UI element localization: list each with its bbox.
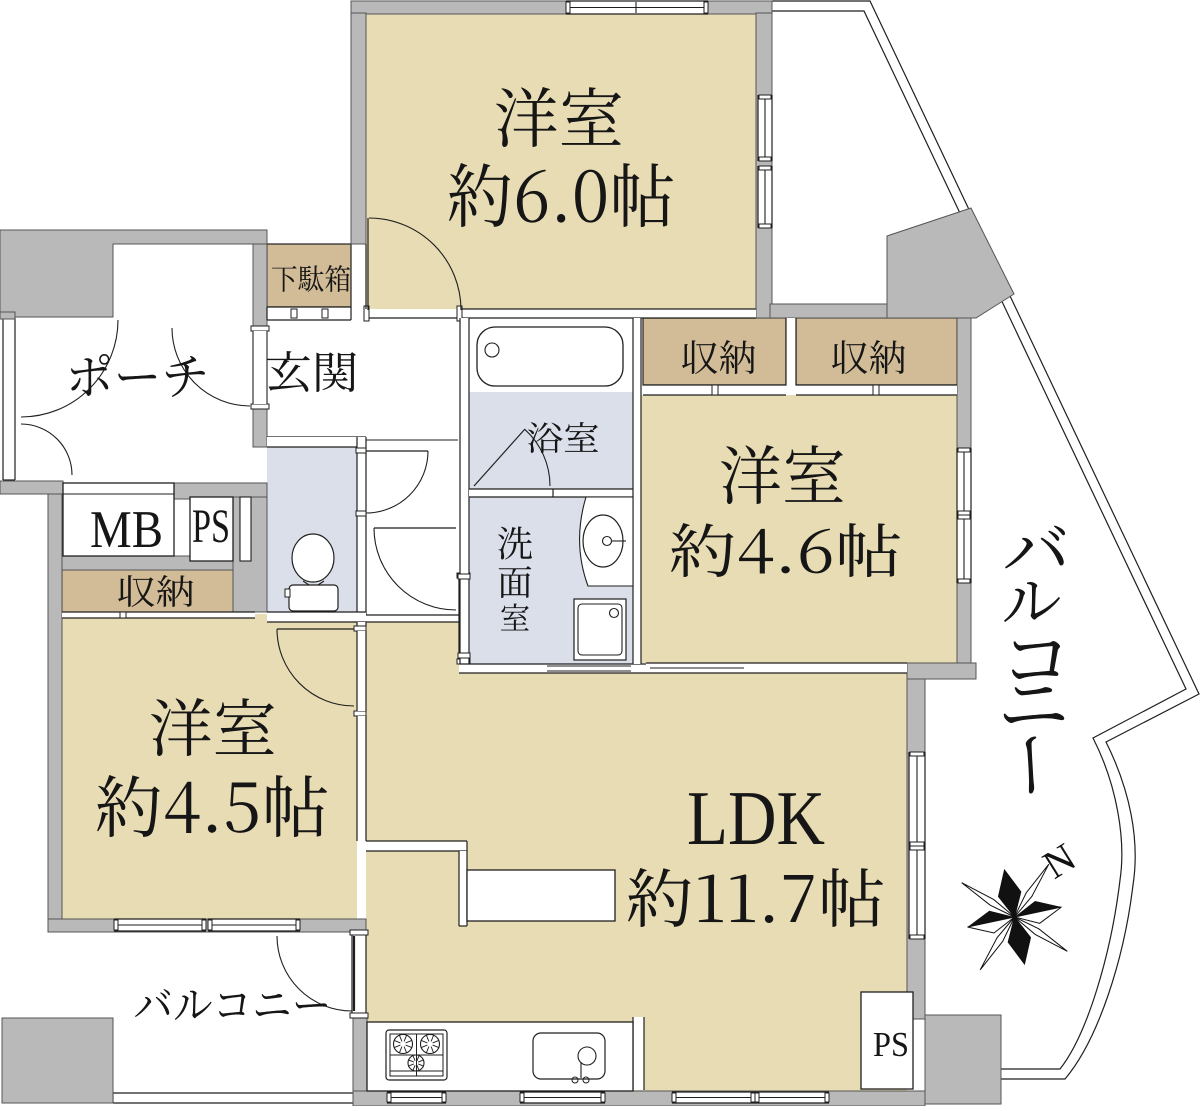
svg-text:MB: MB: [90, 501, 163, 559]
svg-text:PS: PS: [192, 500, 230, 553]
svg-text:LDK: LDK: [687, 775, 825, 861]
svg-text:PS: PS: [873, 1025, 909, 1064]
